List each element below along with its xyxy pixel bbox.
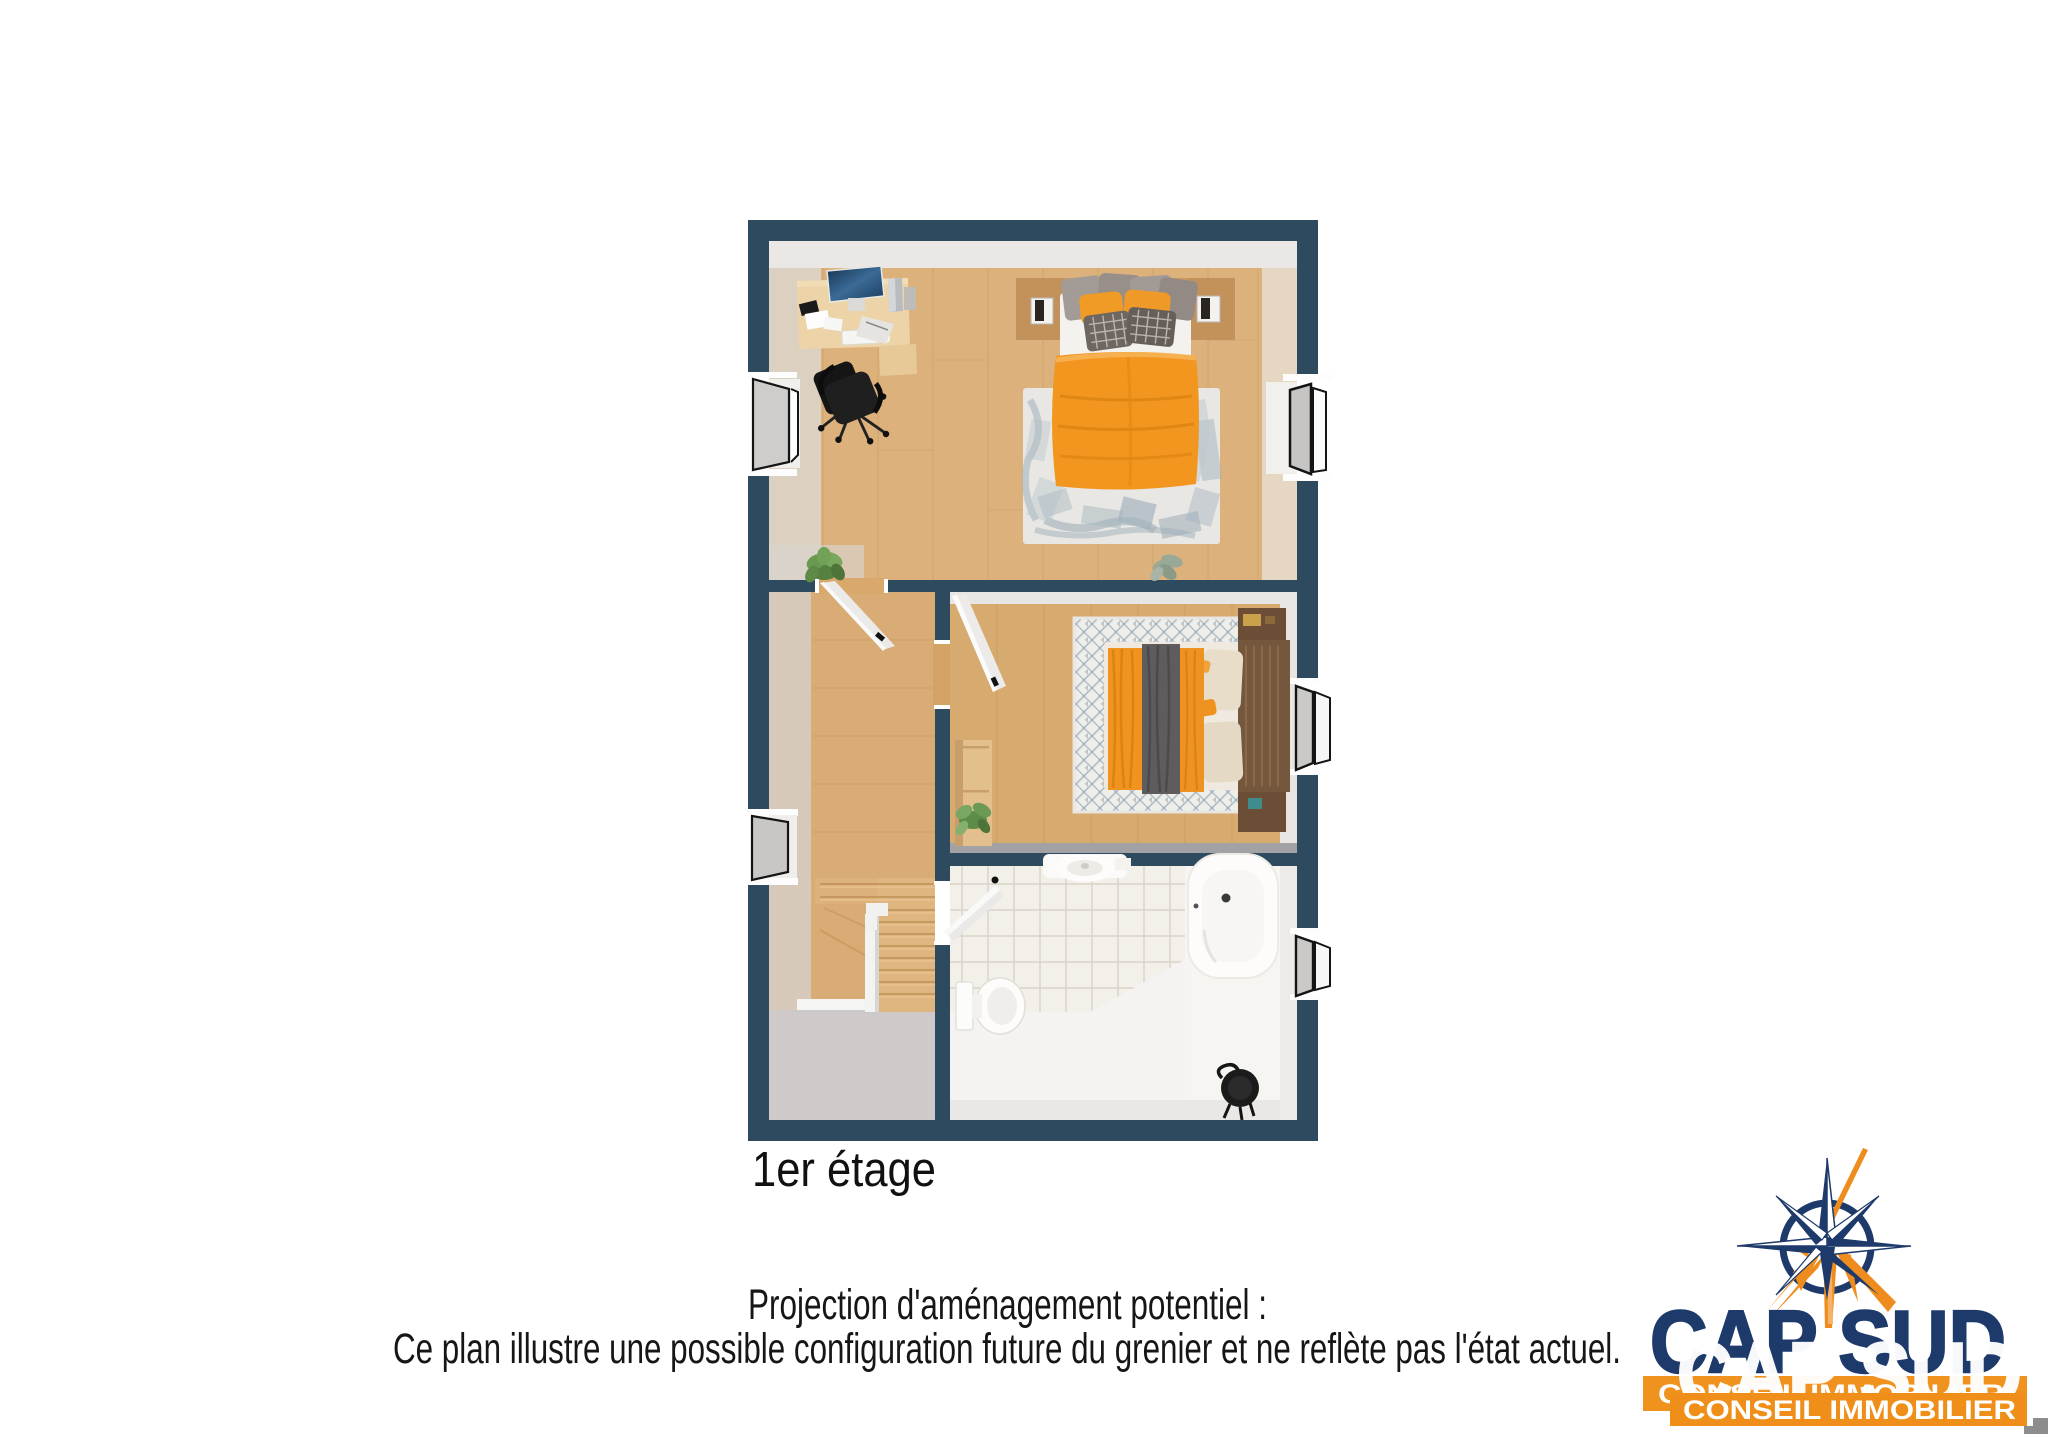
svg-text:Projection d'aménagement poten: Projection d'aménagement potentiel : bbox=[748, 1281, 1267, 1329]
svg-text:CONSEIL IMMOBILIER: CONSEIL IMMOBILIER bbox=[1683, 1395, 2016, 1425]
svg-text:1er étage: 1er étage bbox=[752, 1143, 936, 1197]
svg-text:Ce plan illustre une possible: Ce plan illustre une possible configurat… bbox=[393, 1325, 1621, 1373]
